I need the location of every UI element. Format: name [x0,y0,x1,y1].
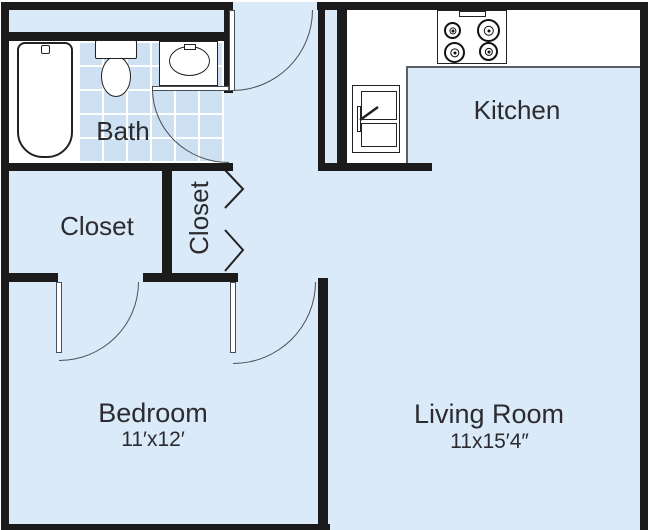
room-label-bath: Bath [63,116,183,146]
toilet-tank-icon [95,40,137,59]
bedroom-door-leaf [230,282,236,353]
wall-left [1,2,9,530]
wall-closet-divider [162,171,172,282]
counter-edge [406,66,408,163]
refrigerator-bottom-compartment [361,123,397,147]
room-dimensions-bedroom: 11′x12′ [93,428,213,452]
wall-top-bath [9,2,233,10]
tub-drain-icon [41,45,50,54]
bedroom-closet-door-leaf [56,282,62,353]
room-label-bedroom: Bedroom [73,398,233,428]
toilet-icon [101,56,131,97]
counter-edge [406,66,640,68]
wall-hall-right [318,10,325,163]
room-dimensions-living: 11x15′4″ [422,430,557,454]
sink-icon [169,46,210,76]
wall-kitchen-left [337,10,347,163]
faucet-icon [184,44,196,50]
burner-icon [479,42,498,61]
room-label-living: Living Room [399,399,579,429]
refrigerator-handle [357,106,361,132]
entry-door-leaf [229,10,235,91]
burner-icon [444,42,465,63]
bath-door-leaf [152,86,229,91]
wall-top-kitchen [317,2,648,10]
room-label-kitchen: Kitchen [447,95,587,125]
wall-bedroom-bottom [1,524,330,530]
room-label-closet-small: Closet [184,158,214,278]
room-label-closet-large: Closet [37,211,157,241]
stove-control-panel [459,11,486,17]
burner-icon [444,22,461,39]
refrigerator-top-compartment [361,91,397,120]
floorplan: Bath Kitchen Closet Closet Bedroom 11′x1… [0,0,650,530]
wall-right [640,2,648,530]
wall-living-divider [318,278,328,530]
wall-kitchen-bottom [318,163,432,171]
burner-icon [477,19,500,42]
wall-bedroom-north-left [1,273,58,282]
